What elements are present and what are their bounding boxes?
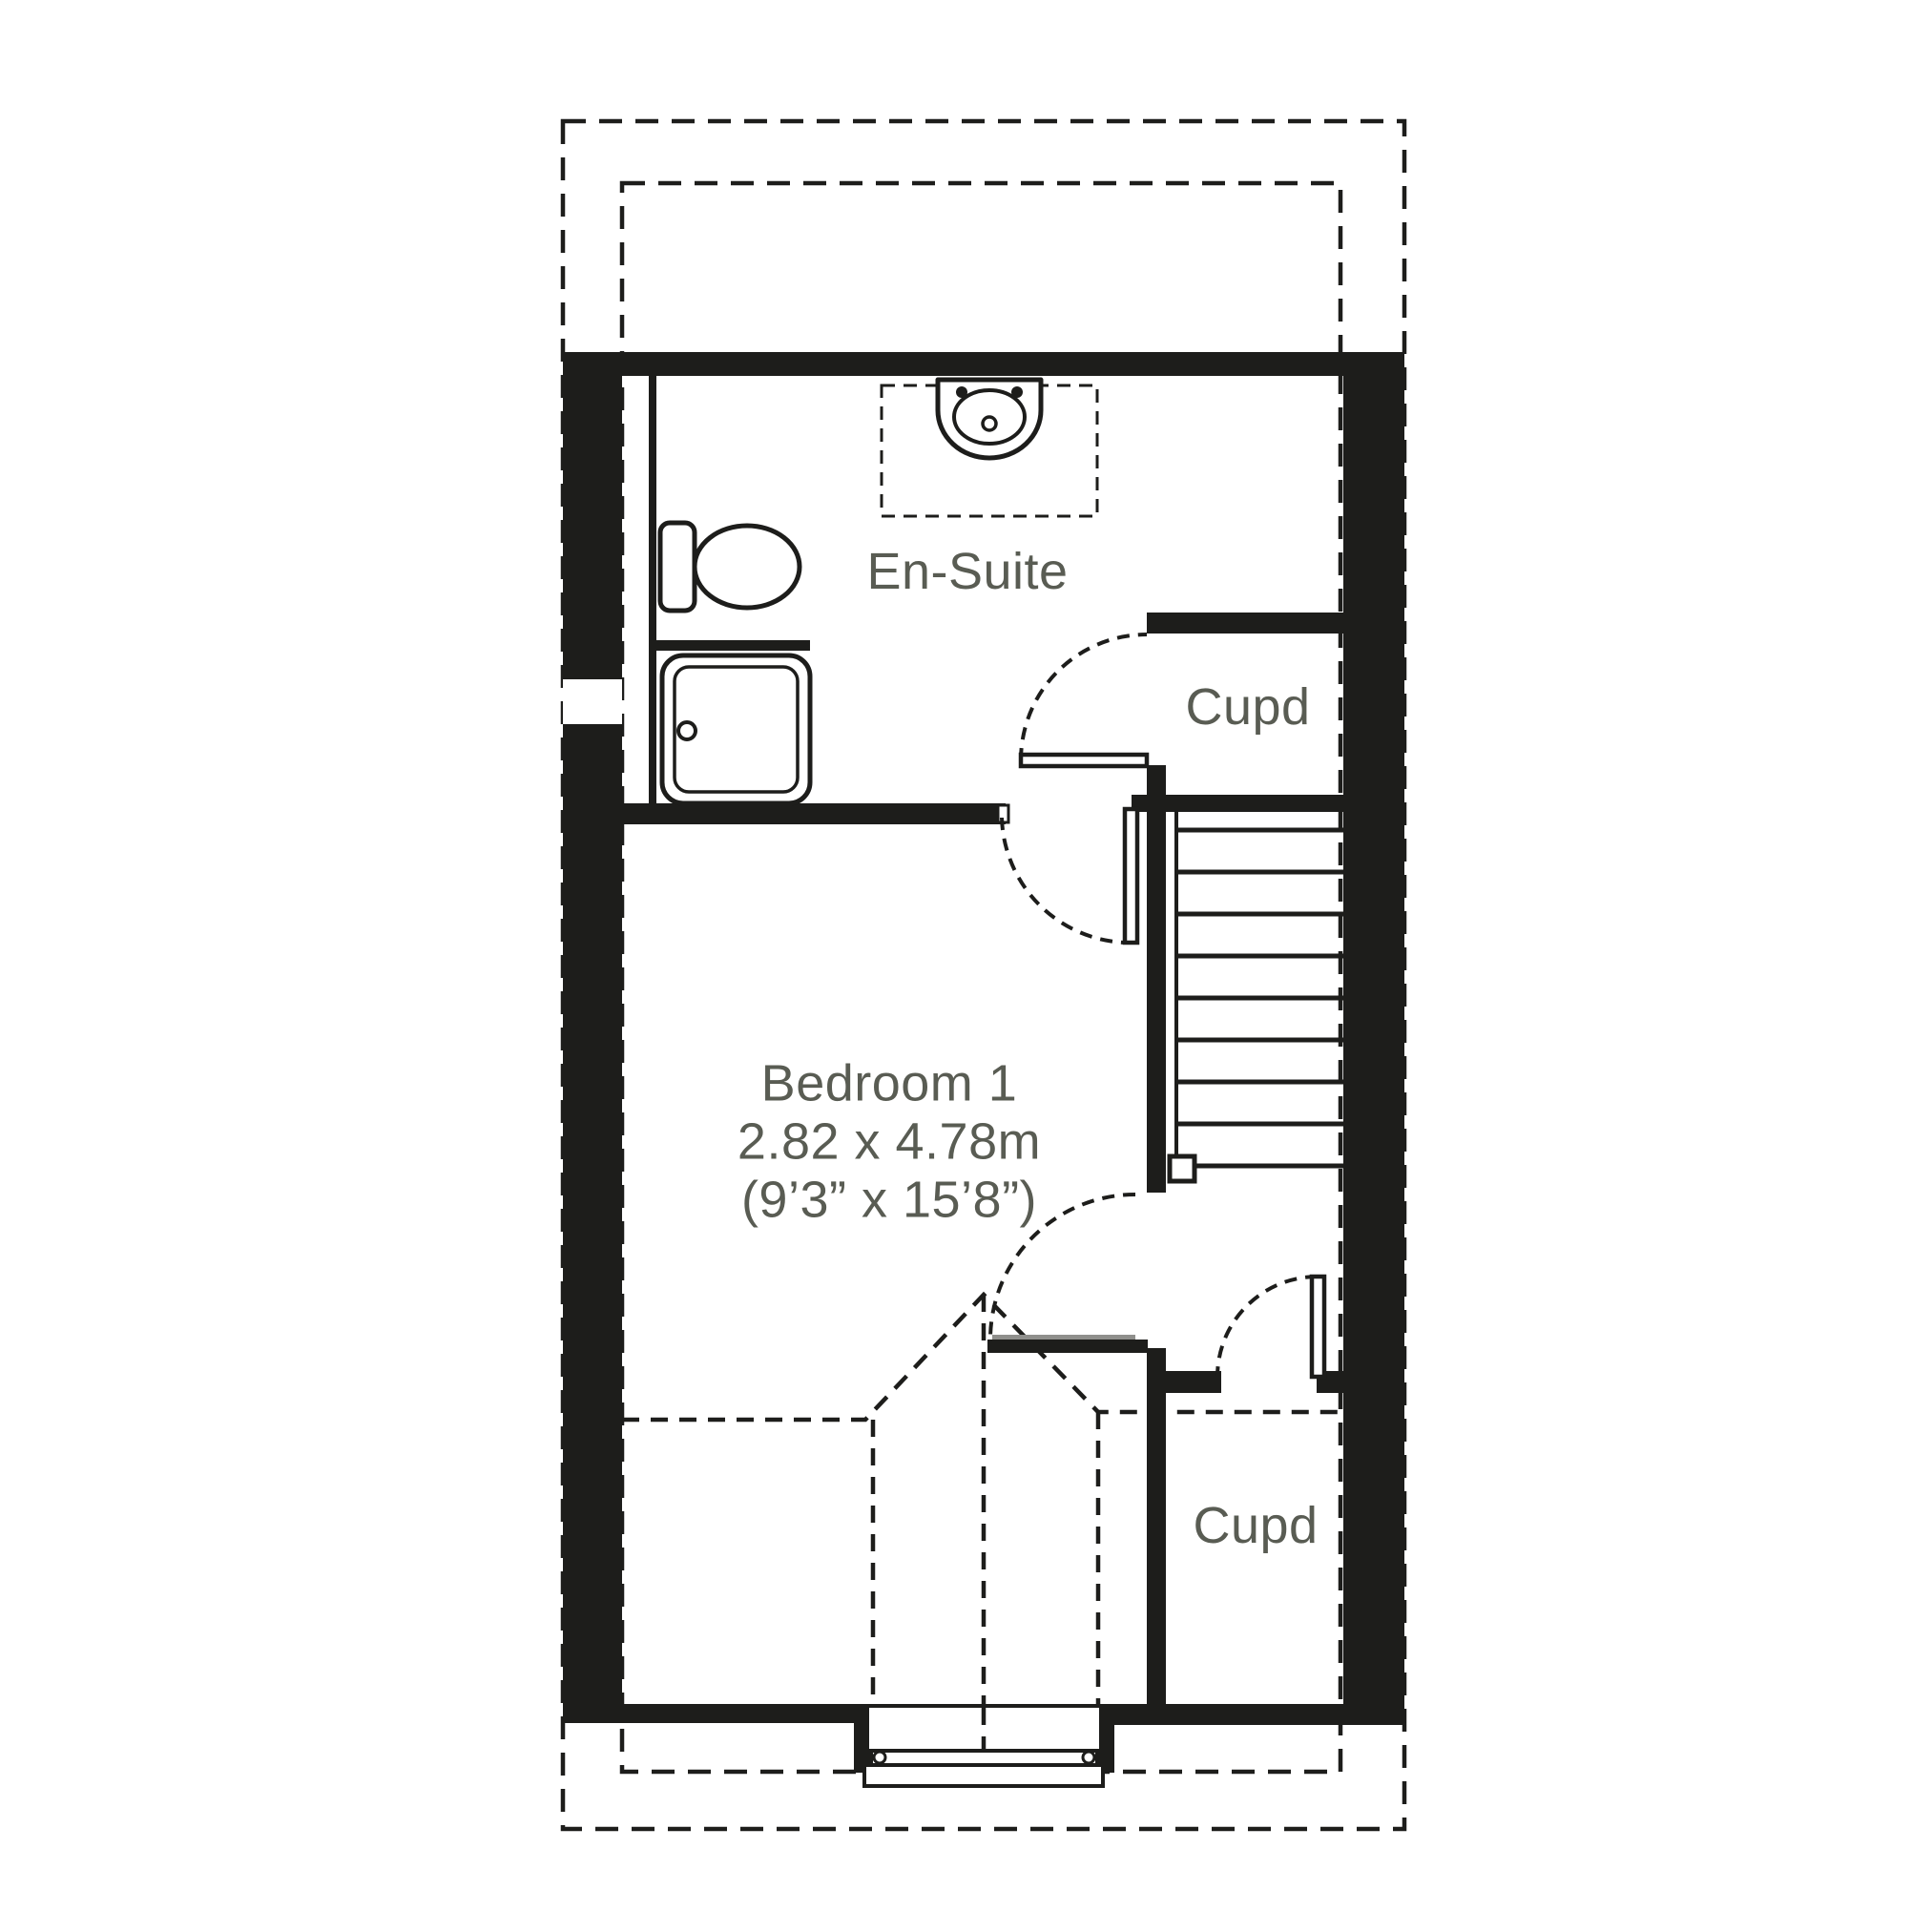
door-leaf-cupboard-bottom: [1312, 1277, 1324, 1377]
wall-left: [563, 352, 622, 1723]
bedroom-size-metric: 2.82 x 4.78m: [737, 1113, 1041, 1172]
window-left-cap-top: [563, 673, 622, 679]
window-left-cap-bottom: [563, 724, 622, 731]
window-left-opening: [563, 678, 622, 726]
door-leaf-ensuite: [1125, 809, 1137, 943]
dormer-window-jamb-right: [1099, 1704, 1114, 1773]
door-arc-cupboard-top: [1021, 634, 1147, 760]
shower-screen: [656, 640, 810, 651]
basin-tap-left-icon: [956, 386, 967, 398]
dormer-window-sill: [864, 1765, 1103, 1786]
door-arc-cupboard-bottom: [1217, 1277, 1318, 1377]
room-label-cupboard-top: Cupd: [1185, 677, 1310, 737]
door-arc-ensuite: [1002, 818, 1126, 943]
wall-ensuite-west-thin: [649, 376, 656, 803]
wall-ensuite-south: [563, 803, 1006, 824]
room-label-ensuite: En-Suite: [866, 542, 1068, 601]
room-label-cupboard-bottom: Cupd: [1193, 1496, 1318, 1555]
toilet-cistern-icon: [660, 523, 695, 611]
floor-plan-drawing: [0, 0, 1932, 1932]
door-leaf-bedroom: [987, 1340, 1148, 1353]
wall-cupboard-bottom-west: [1147, 1348, 1166, 1708]
room-label-bedroom: Bedroom 1 2.82 x 4.78m (9’3” x 15’8”): [737, 1055, 1041, 1230]
dormer-window-jamb-left: [854, 1704, 869, 1773]
wall-cupboard-bottom-north: [1166, 1371, 1221, 1393]
wall-stair-west: [1147, 765, 1166, 1193]
wall-top: [563, 352, 1404, 376]
bedroom-size-imperial: (9’3” x 15’8”): [737, 1172, 1041, 1230]
toilet-bowl-icon: [695, 526, 800, 608]
dormer-window-frame-end-right: [1083, 1752, 1094, 1763]
bedroom-name: Bedroom 1: [737, 1055, 1041, 1113]
dormer-window-frame-end-left: [874, 1752, 885, 1763]
basin-plughole-icon: [983, 417, 996, 430]
dormer-window-frame: [871, 1751, 1097, 1765]
wall-cupboard-top-north: [1147, 613, 1343, 634]
door-leaf-cupboard-top: [1021, 755, 1147, 766]
wall-right: [1343, 352, 1404, 1725]
stair-treads: [1178, 830, 1343, 1166]
wall-bottom-left: [563, 1704, 857, 1723]
stair-newel-post: [1170, 1156, 1195, 1181]
basin-tap-right-icon: [1011, 386, 1023, 398]
shower-drain-icon: [678, 722, 696, 739]
floor-plan: En-Suite Cupd Bedroom 1 2.82 x 4.78m (9’…: [0, 0, 1932, 1932]
